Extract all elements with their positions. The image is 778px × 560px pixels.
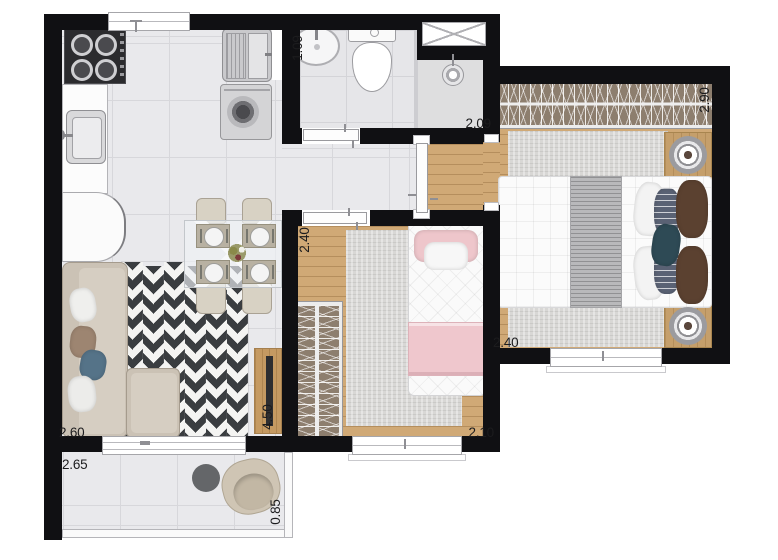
cutlery-icon: [226, 265, 228, 279]
shower-hose: [452, 54, 454, 66]
wall-master-right: [712, 66, 730, 364]
bedroom2-window: [352, 436, 462, 455]
sink-basin: [72, 117, 102, 159]
balcony-sliding-door: [102, 436, 246, 455]
floor-plan: 1.09 2.09 2.90 2.40 2.40 2.10 4.50 2.60 …: [0, 0, 778, 560]
brown-pillow: [676, 246, 708, 304]
door-handle: [408, 194, 416, 196]
wall-master-bottom-b: [662, 348, 730, 364]
master-window-sill: [546, 366, 666, 373]
cutlery-icon: [246, 265, 248, 279]
dim-text: 1.09: [290, 35, 305, 60]
shower-head-icon: [442, 64, 464, 86]
stove-knobs: [120, 33, 124, 81]
master-closet: [494, 80, 716, 128]
cutlery-icon: [272, 229, 274, 243]
dining-circulation-floor: [282, 144, 416, 210]
brown-pillow: [676, 180, 708, 238]
burner-icon: [71, 59, 93, 81]
window-latch: [404, 439, 406, 449]
dim-balcony-length: 2.65: [62, 456, 106, 472]
window-faucet-symbol: [135, 20, 137, 32]
cutlery-icon: [246, 229, 248, 243]
wall-bath-bottom-a: [282, 128, 302, 144]
kitchen-sink-icon: [66, 110, 106, 164]
stove-icon: [64, 28, 126, 84]
wall-master-left-lower: [483, 205, 500, 452]
dim-text: 2.90: [697, 87, 712, 112]
sink-drain: [314, 44, 320, 50]
kitchen-cabinet: [62, 192, 126, 262]
wall-bedroom2-bottom-a: [298, 436, 352, 452]
striped-blanket: [570, 176, 622, 308]
dim-bathroom-depth: 2.09: [447, 115, 491, 131]
wall-master-top: [483, 66, 730, 84]
plate-icon: [250, 263, 270, 283]
bedroom2-window-sill: [348, 454, 466, 461]
kitchen-window: [108, 12, 190, 31]
dim-balcony-depth: 0.85: [267, 490, 283, 534]
cutlery-icon: [272, 265, 274, 279]
balcony-side-table: [192, 464, 220, 492]
master-doorway-jamb: [484, 202, 499, 211]
door-handle: [356, 222, 358, 230]
dim-master-closet-width: 2.90: [696, 78, 712, 122]
dim-bedroom2-width: 2.40: [296, 218, 312, 262]
burner-icon: [71, 34, 93, 56]
dim-text: 2.65: [62, 457, 87, 472]
bedroom2-wardrobe: [292, 302, 342, 442]
washer-door: [227, 96, 259, 128]
tank-backsplash: [272, 30, 282, 80]
door-handle: [348, 208, 350, 216]
dim-bathroom-width: 1.09: [289, 26, 305, 70]
dim-text: 2.09: [466, 116, 491, 131]
window-latch: [602, 351, 604, 361]
master-window: [550, 348, 662, 367]
burner-icon: [95, 34, 117, 56]
sofa-chaise: [126, 368, 180, 438]
dim-text: 0.85: [268, 499, 283, 524]
wall-top-a: [44, 14, 112, 30]
hallway-floor: [426, 144, 483, 210]
white-pillow: [424, 242, 468, 270]
dim-text: 2.40: [297, 227, 312, 252]
balcony-railing-bottom: [62, 529, 293, 538]
dim-text: 2.10: [469, 425, 494, 440]
table-lamp-icon: [669, 307, 707, 345]
washer-panel: [224, 89, 270, 91]
wall-left: [44, 14, 62, 540]
table-lamp-icon: [669, 136, 707, 174]
plate-icon: [250, 227, 270, 247]
cutlery-icon: [200, 265, 202, 279]
hall-door: [416, 143, 428, 213]
dim-master-depth: 2.40: [493, 334, 537, 350]
laundry-tank-icon: [222, 28, 272, 82]
dim-text: 2.40: [493, 335, 518, 350]
door-handle: [430, 198, 438, 200]
master-doorway-jamb: [484, 134, 499, 143]
dim-living-width: 2.60: [59, 424, 103, 440]
bathroom-door: [303, 129, 359, 141]
slider-handle: [140, 441, 150, 445]
washing-machine-icon: [220, 84, 272, 140]
chaise-cushion: [131, 373, 177, 433]
plate-icon: [204, 263, 224, 283]
dim-bedroom2-depth: 2.10: [450, 424, 494, 440]
plate-icon: [204, 227, 224, 247]
tank-basin: [248, 33, 268, 79]
dim-text: 4.50: [260, 404, 275, 429]
pink-blanket: [408, 322, 486, 376]
balcony-railing-right: [284, 452, 293, 538]
duct-shaft: [422, 22, 486, 46]
dim-living-depth: 4.50: [259, 395, 275, 439]
burner-icon: [95, 59, 117, 81]
cutlery-icon: [200, 229, 202, 243]
dim-text: 2.60: [59, 425, 84, 440]
door-handle: [344, 124, 346, 132]
table-centerpiece: [225, 242, 249, 264]
tank-ribs: [226, 33, 246, 79]
cutlery-icon: [226, 229, 228, 243]
door-handle: [352, 140, 354, 148]
